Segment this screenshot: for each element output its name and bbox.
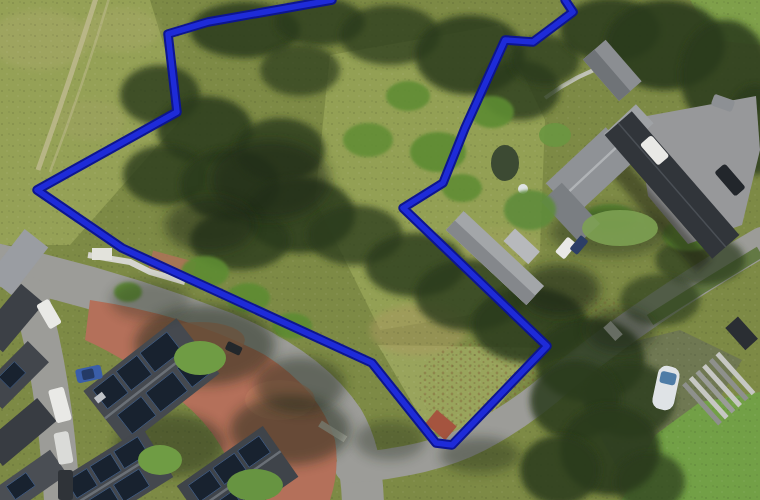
tree-shadow: [110, 280, 190, 320]
pond: [491, 145, 519, 181]
lawn: [174, 341, 226, 375]
trees: [260, 44, 340, 96]
tree-shadow: [255, 357, 345, 413]
lawn: [138, 445, 182, 475]
tree-shadow: [585, 308, 655, 352]
tree-shadow: [355, 420, 425, 460]
garden-lawn: [539, 123, 571, 147]
garden-lawn: [504, 190, 556, 230]
rear-lawn: [582, 210, 658, 246]
parked-car: [58, 470, 73, 500]
bush: [386, 81, 430, 111]
white-shed: [92, 248, 112, 260]
aerial-scene: [0, 0, 760, 500]
lawn: [227, 469, 283, 500]
aerial-photo: [0, 0, 760, 500]
bush: [343, 123, 393, 157]
tree-shadow: [165, 197, 255, 253]
